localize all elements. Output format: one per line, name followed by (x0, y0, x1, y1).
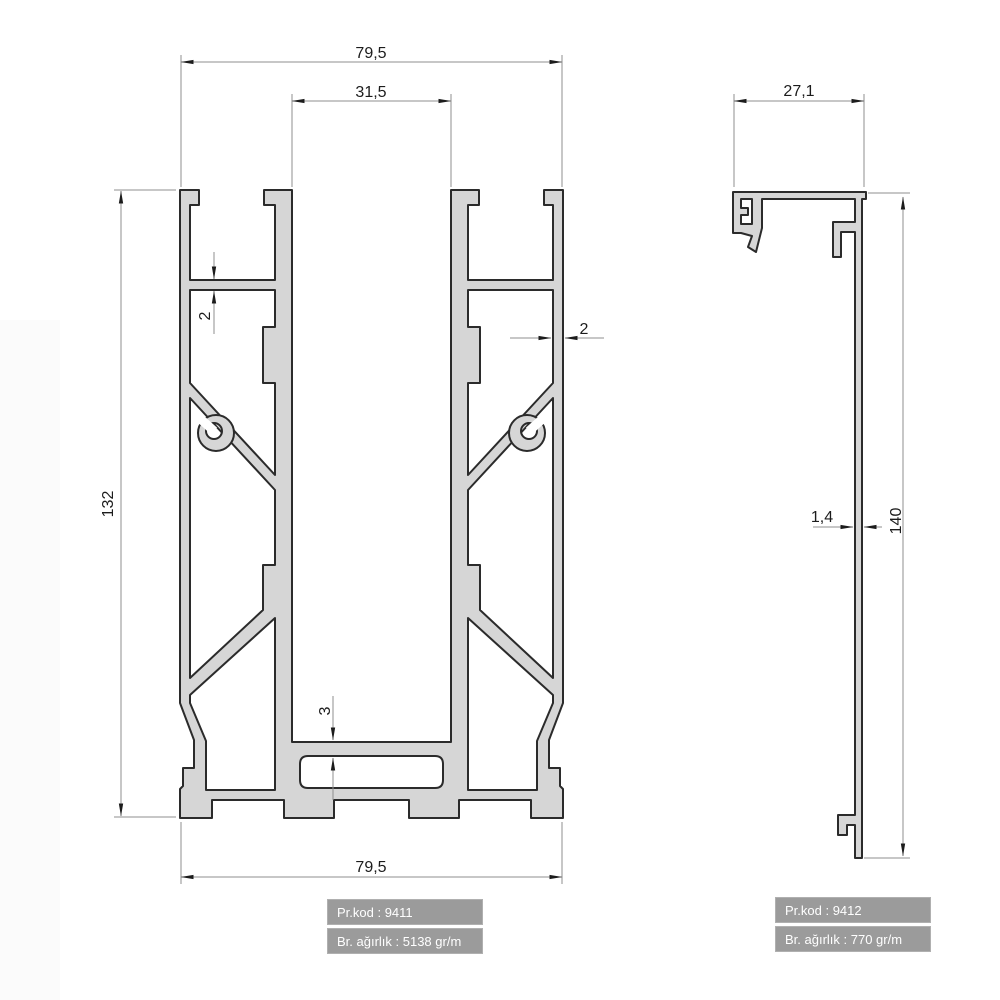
screw-boss-left (192, 410, 234, 451)
profile-9411-info-box: Pr.kod : 9411 Br. ağırlık : 5138 gr/m (327, 899, 483, 954)
unit-weight-label: Br. ağırlık : 5138 gr/m (327, 928, 483, 954)
dim-label-leg-thickness: 1,4 (811, 509, 833, 526)
dim-label-web-thickness: 2 (197, 311, 214, 320)
technical-drawing: 79,5 31,5 132 2 2 3 79,5 (0, 0, 1000, 1000)
dim-label-top-width: 79,5 (355, 45, 386, 62)
profile-9412-cross-section (733, 192, 866, 858)
dim-label-leg-height: 140 (888, 508, 905, 535)
profile-9411-section (180, 190, 563, 818)
profile-9411-cross-section (180, 190, 563, 818)
dim-label-height: 132 (100, 491, 117, 518)
dim-label-wall-thickness: 2 (580, 321, 589, 338)
dim-label-slot-width: 31,5 (355, 84, 386, 101)
profile-9412-section (733, 192, 866, 858)
dim-label-floor-thickness: 3 (317, 706, 334, 715)
unit-weight-label: Br. ağırlık : 770 gr/m (775, 926, 931, 952)
screw-boss-right (509, 410, 551, 451)
profile-9412-info-box: Pr.kod : 9412 Br. ağırlık : 770 gr/m (775, 897, 931, 952)
dimensions-left-profile: 79,5 31,5 132 2 2 3 79,5 (100, 45, 604, 884)
product-code-label: Pr.kod : 9411 (327, 899, 483, 925)
dim-label-bottom-width: 79,5 (355, 859, 386, 876)
dim-label-flange-width: 27,1 (783, 83, 814, 100)
drawing-canvas: 79,5 31,5 132 2 2 3 79,5 (0, 0, 1000, 1000)
product-code-label: Pr.kod : 9412 (775, 897, 931, 923)
